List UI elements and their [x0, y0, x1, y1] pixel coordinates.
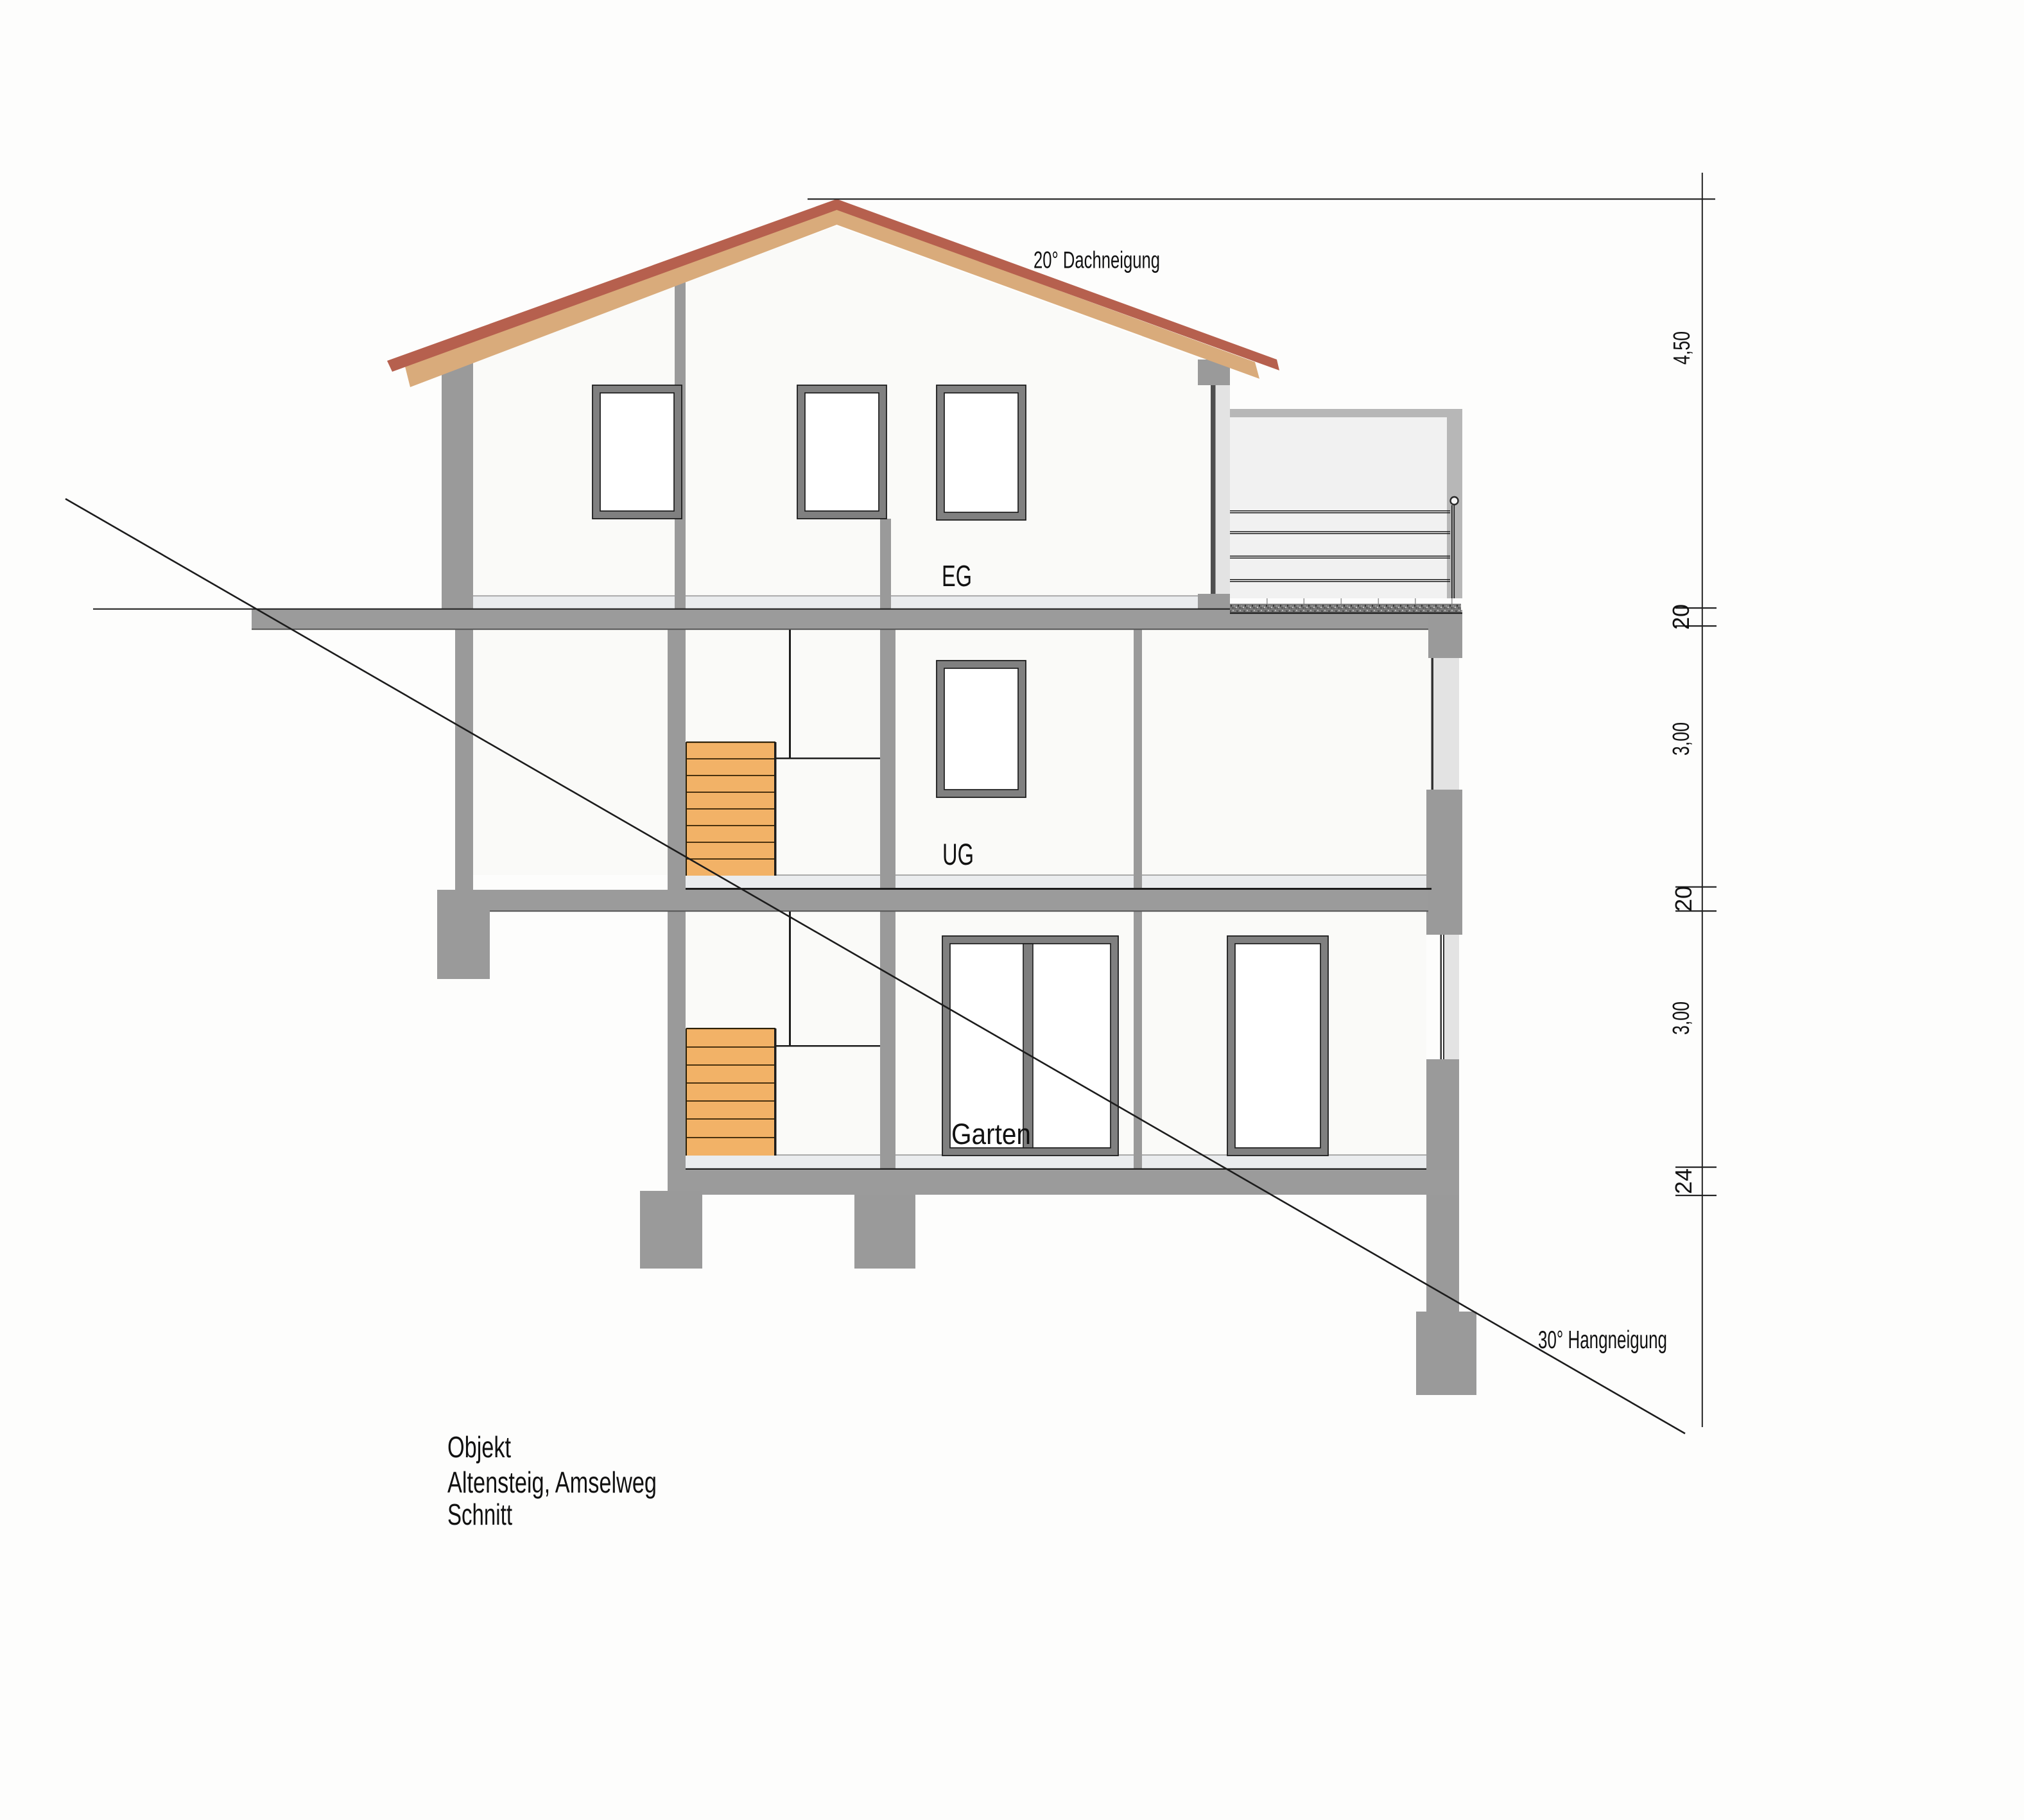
svg-text:Schnitt: Schnitt	[447, 1498, 512, 1531]
svg-text:30° Hangneigung: 30° Hangneigung	[1538, 1326, 1667, 1354]
svg-text:UG: UG	[942, 837, 974, 871]
svg-text:3,00: 3,00	[1668, 1001, 1694, 1035]
svg-text:4,50: 4,50	[1668, 331, 1695, 365]
svg-text:20: 20	[1670, 886, 1697, 912]
svg-text:20: 20	[1668, 604, 1694, 630]
svg-text:EG: EG	[942, 559, 972, 593]
svg-text:3,00: 3,00	[1668, 722, 1694, 756]
svg-text:Objekt: Objekt	[447, 1430, 511, 1464]
svg-text:24: 24	[1670, 1168, 1697, 1194]
svg-text:Garten: Garten	[951, 1118, 1031, 1150]
svg-text:20° Dachneigung: 20° Dachneigung	[1034, 247, 1160, 273]
svg-text:Altensteig, Amselweg: Altensteig, Amselweg	[447, 1466, 657, 1499]
